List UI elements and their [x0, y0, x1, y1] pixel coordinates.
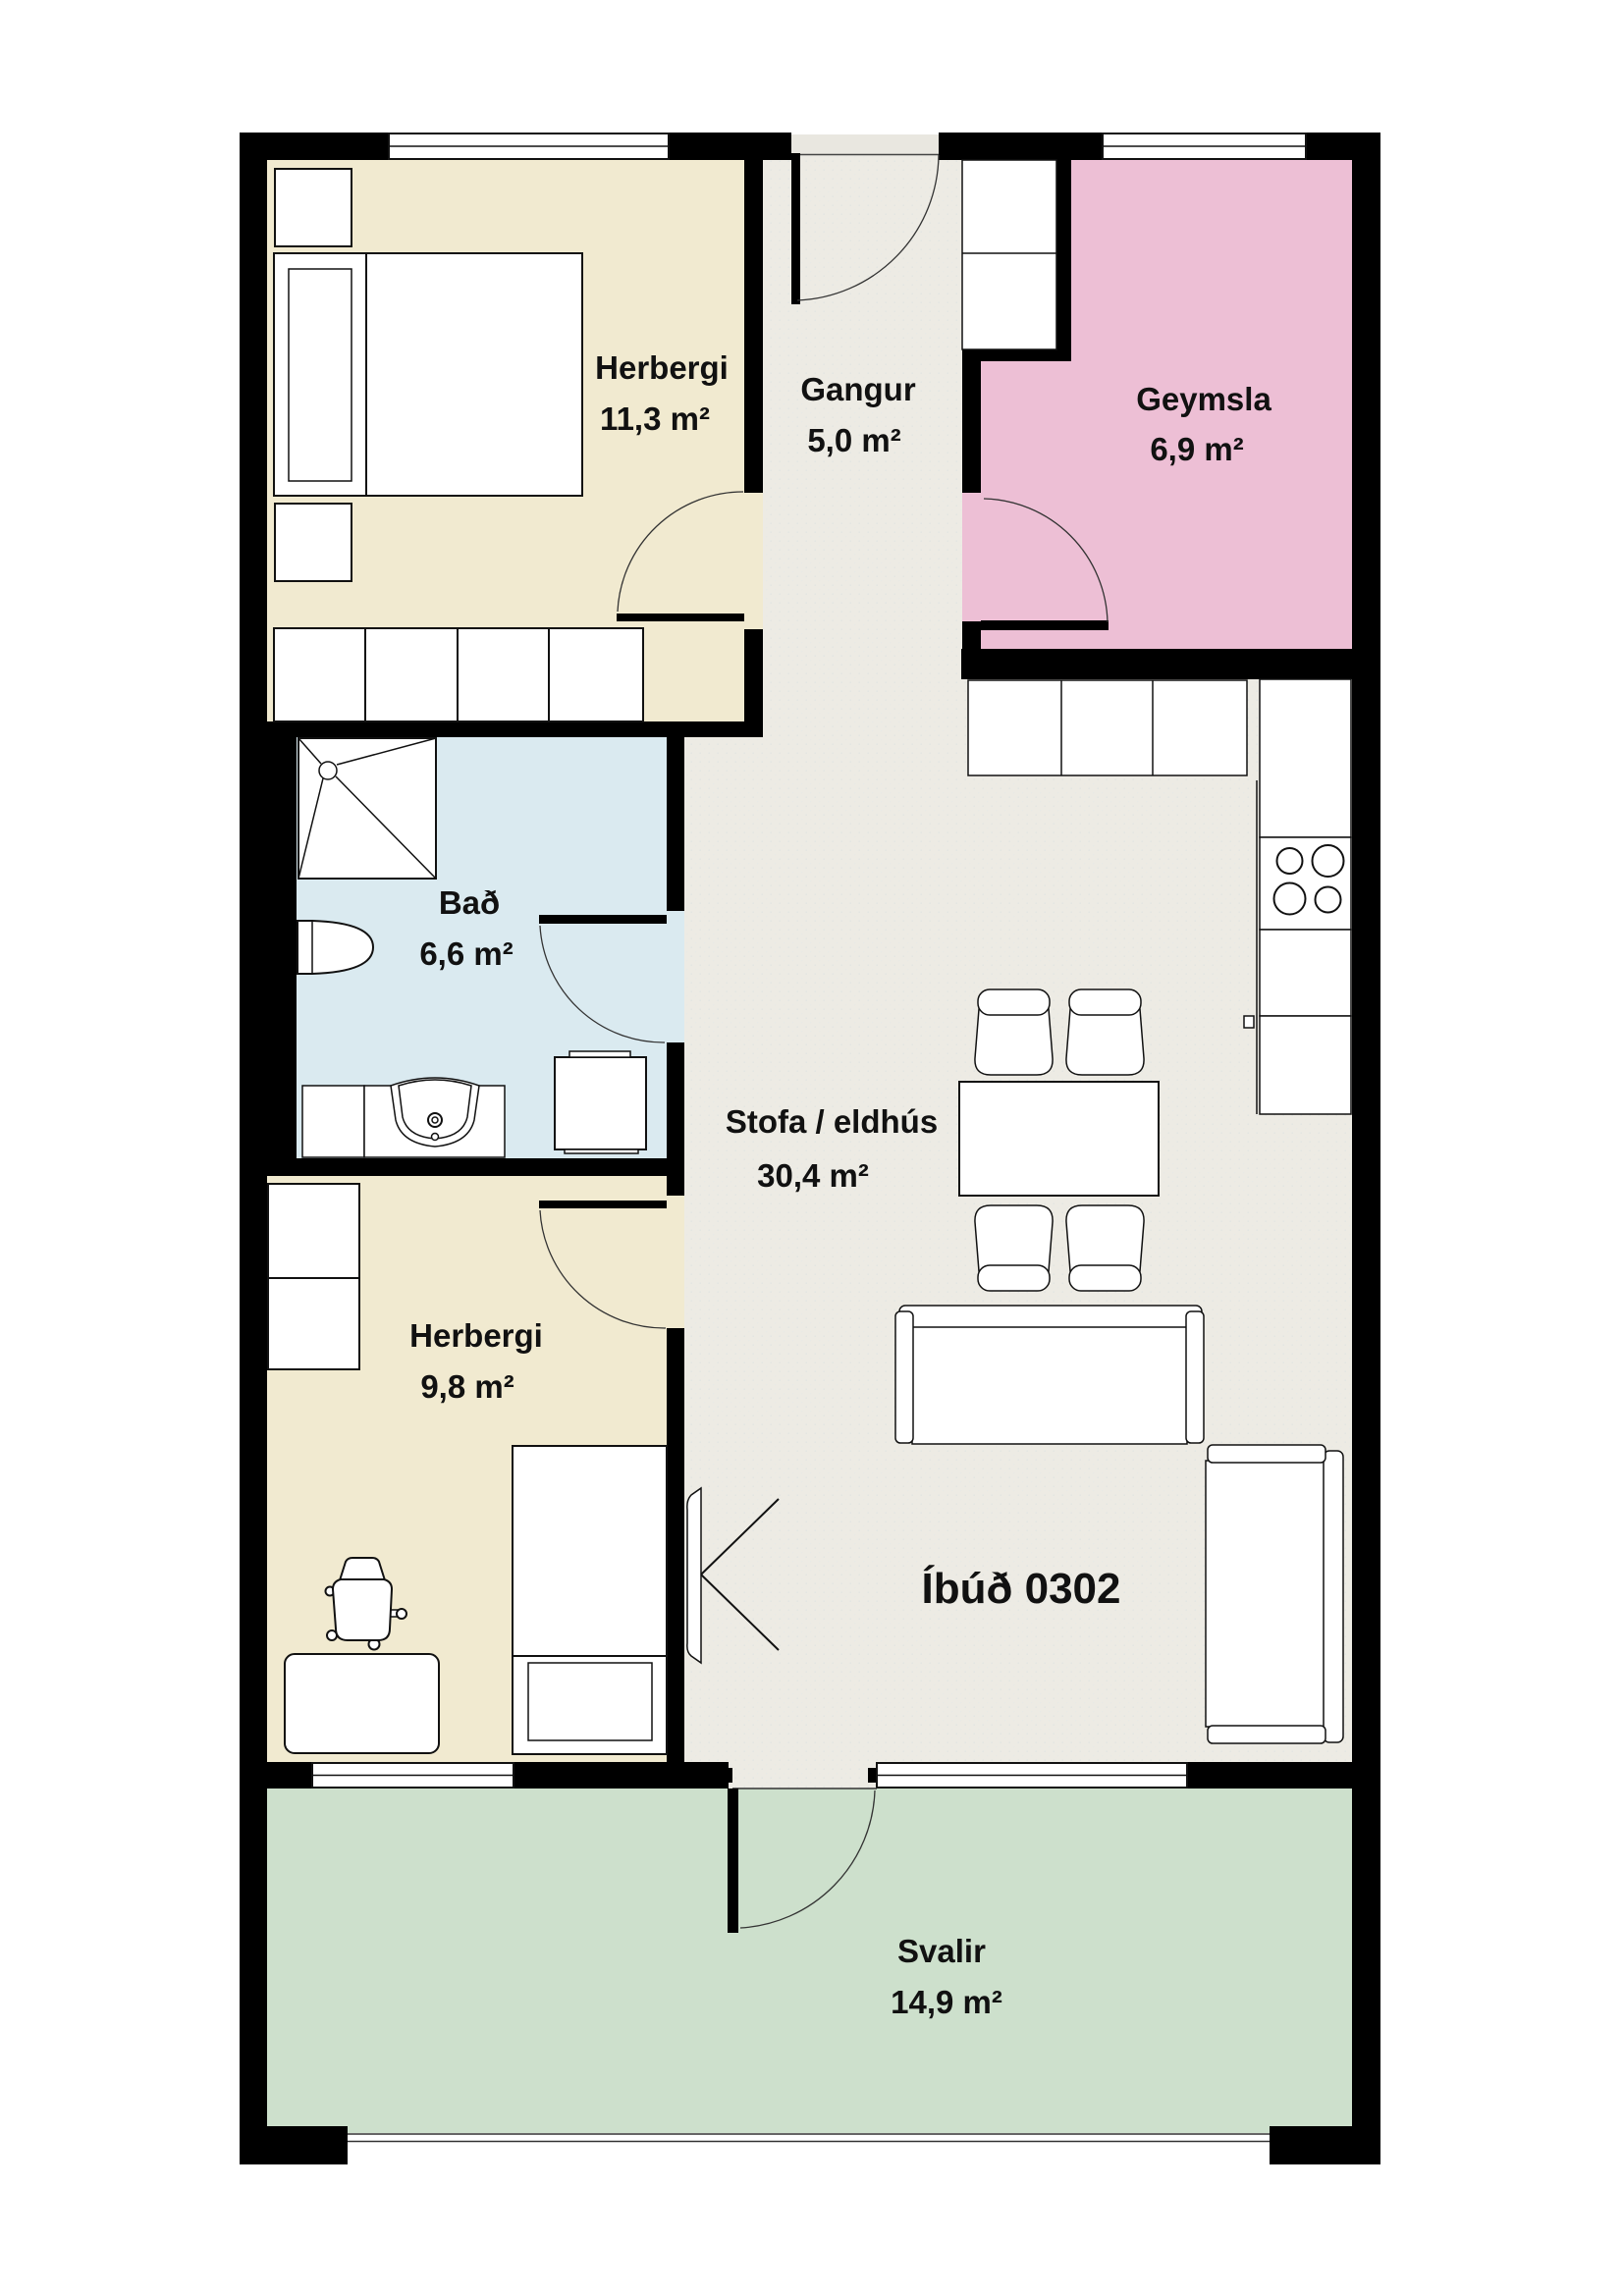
svg-text:Geymsla: Geymsla — [1136, 381, 1271, 417]
svg-text:30,4 m²: 30,4 m² — [757, 1157, 869, 1194]
svg-text:Svalir: Svalir — [897, 1933, 986, 1969]
svg-text:11,3 m²: 11,3 m² — [600, 400, 710, 437]
svg-text:5,0 m²: 5,0 m² — [807, 422, 900, 458]
svg-text:Herbergi: Herbergi — [595, 349, 729, 386]
svg-text:6,9 m²: 6,9 m² — [1150, 431, 1243, 467]
svg-text:14,9 m²: 14,9 m² — [891, 1984, 1002, 2020]
svg-text:9,8 m²: 9,8 m² — [420, 1368, 514, 1405]
svg-text:Herbergi: Herbergi — [409, 1317, 543, 1354]
svg-text:Gangur: Gangur — [800, 371, 915, 407]
svg-text:Bað: Bað — [439, 884, 500, 921]
svg-text:Stofa / eldhús: Stofa / eldhús — [726, 1103, 938, 1140]
svg-text:6,6 m²: 6,6 m² — [419, 935, 513, 972]
svg-text:Íbúð 0302: Íbúð 0302 — [922, 1564, 1121, 1613]
